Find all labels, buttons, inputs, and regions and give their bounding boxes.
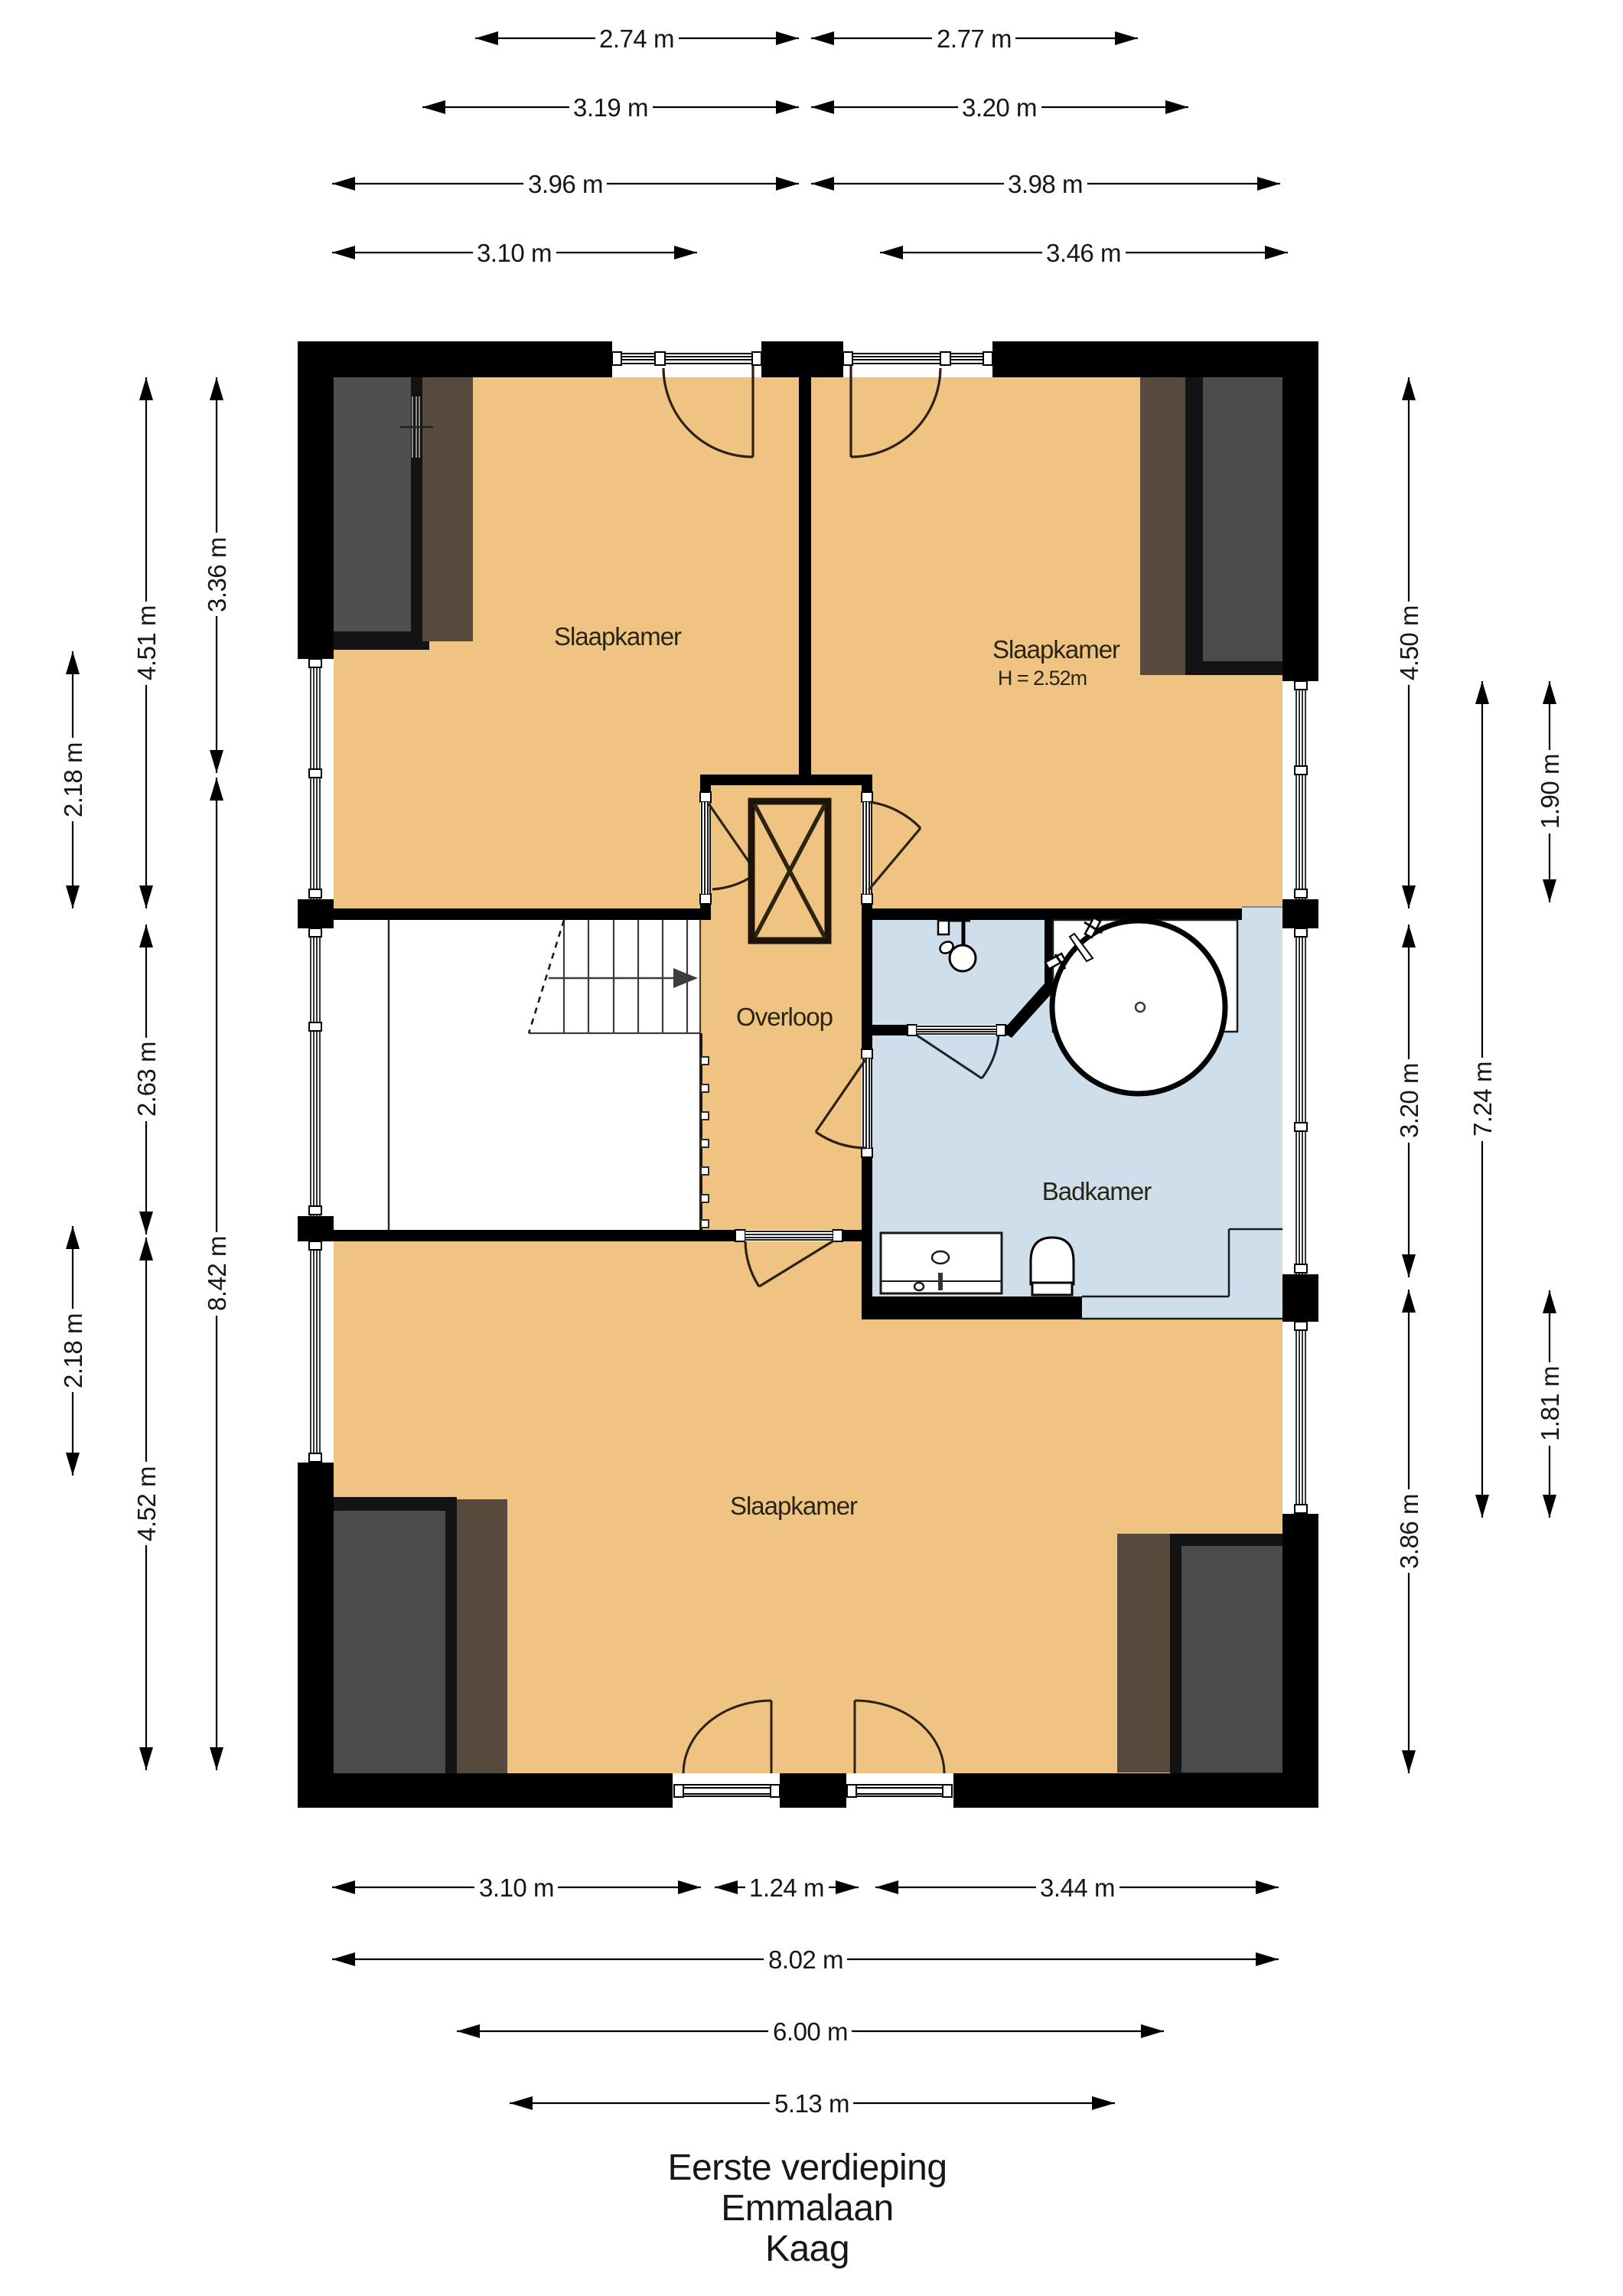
svg-text:2.18 m: 2.18 m xyxy=(59,1313,87,1388)
svg-text:7.24 m: 7.24 m xyxy=(1468,1062,1497,1137)
svg-text:3.19 m: 3.19 m xyxy=(573,93,648,122)
svg-text:5.13 m: 5.13 m xyxy=(774,2089,849,2118)
svg-text:2.18 m: 2.18 m xyxy=(59,742,87,817)
svg-text:8.42 m: 8.42 m xyxy=(203,1236,231,1311)
svg-text:Emmalaan: Emmalaan xyxy=(721,2188,893,2229)
svg-text:Slaapkamer: Slaapkamer xyxy=(554,622,682,651)
svg-text:3.36 m: 3.36 m xyxy=(203,537,231,612)
svg-text:4.50 m: 4.50 m xyxy=(1395,605,1423,680)
svg-text:3.86 m: 3.86 m xyxy=(1395,1494,1423,1569)
svg-text:3.98 m: 3.98 m xyxy=(1008,170,1083,198)
svg-text:4.52 m: 4.52 m xyxy=(132,1466,161,1541)
svg-text:Badkamer: Badkamer xyxy=(1042,1177,1152,1205)
svg-text:H = 2.52m: H = 2.52m xyxy=(998,667,1087,690)
svg-text:3.10 m: 3.10 m xyxy=(479,1874,554,1902)
svg-text:3.20 m: 3.20 m xyxy=(962,93,1037,122)
svg-text:6.00 m: 6.00 m xyxy=(773,2017,848,2046)
svg-text:2.63 m: 2.63 m xyxy=(132,1042,161,1117)
svg-text:1.24 m: 1.24 m xyxy=(749,1874,824,1902)
svg-text:1.90 m: 1.90 m xyxy=(1536,754,1564,829)
svg-text:4.51 m: 4.51 m xyxy=(132,605,161,680)
svg-text:Slaapkamer: Slaapkamer xyxy=(992,635,1120,664)
svg-text:3.10 m: 3.10 m xyxy=(477,239,552,267)
svg-text:Slaapkamer: Slaapkamer xyxy=(730,1492,858,1520)
svg-text:3.44 m: 3.44 m xyxy=(1040,1874,1115,1902)
svg-text:Overloop: Overloop xyxy=(736,1003,833,1031)
svg-text:1.81 m: 1.81 m xyxy=(1536,1366,1564,1441)
svg-text:8.02 m: 8.02 m xyxy=(768,1945,843,1974)
svg-text:2.77 m: 2.77 m xyxy=(937,24,1012,53)
svg-text:3.20 m: 3.20 m xyxy=(1395,1063,1423,1138)
svg-text:Eerste verdieping: Eerste verdieping xyxy=(667,2148,947,2188)
svg-text:Kaag: Kaag xyxy=(765,2229,849,2269)
svg-text:3.46 m: 3.46 m xyxy=(1046,239,1121,267)
svg-text:2.74 m: 2.74 m xyxy=(599,24,674,53)
svg-text:3.96 m: 3.96 m xyxy=(528,170,603,198)
